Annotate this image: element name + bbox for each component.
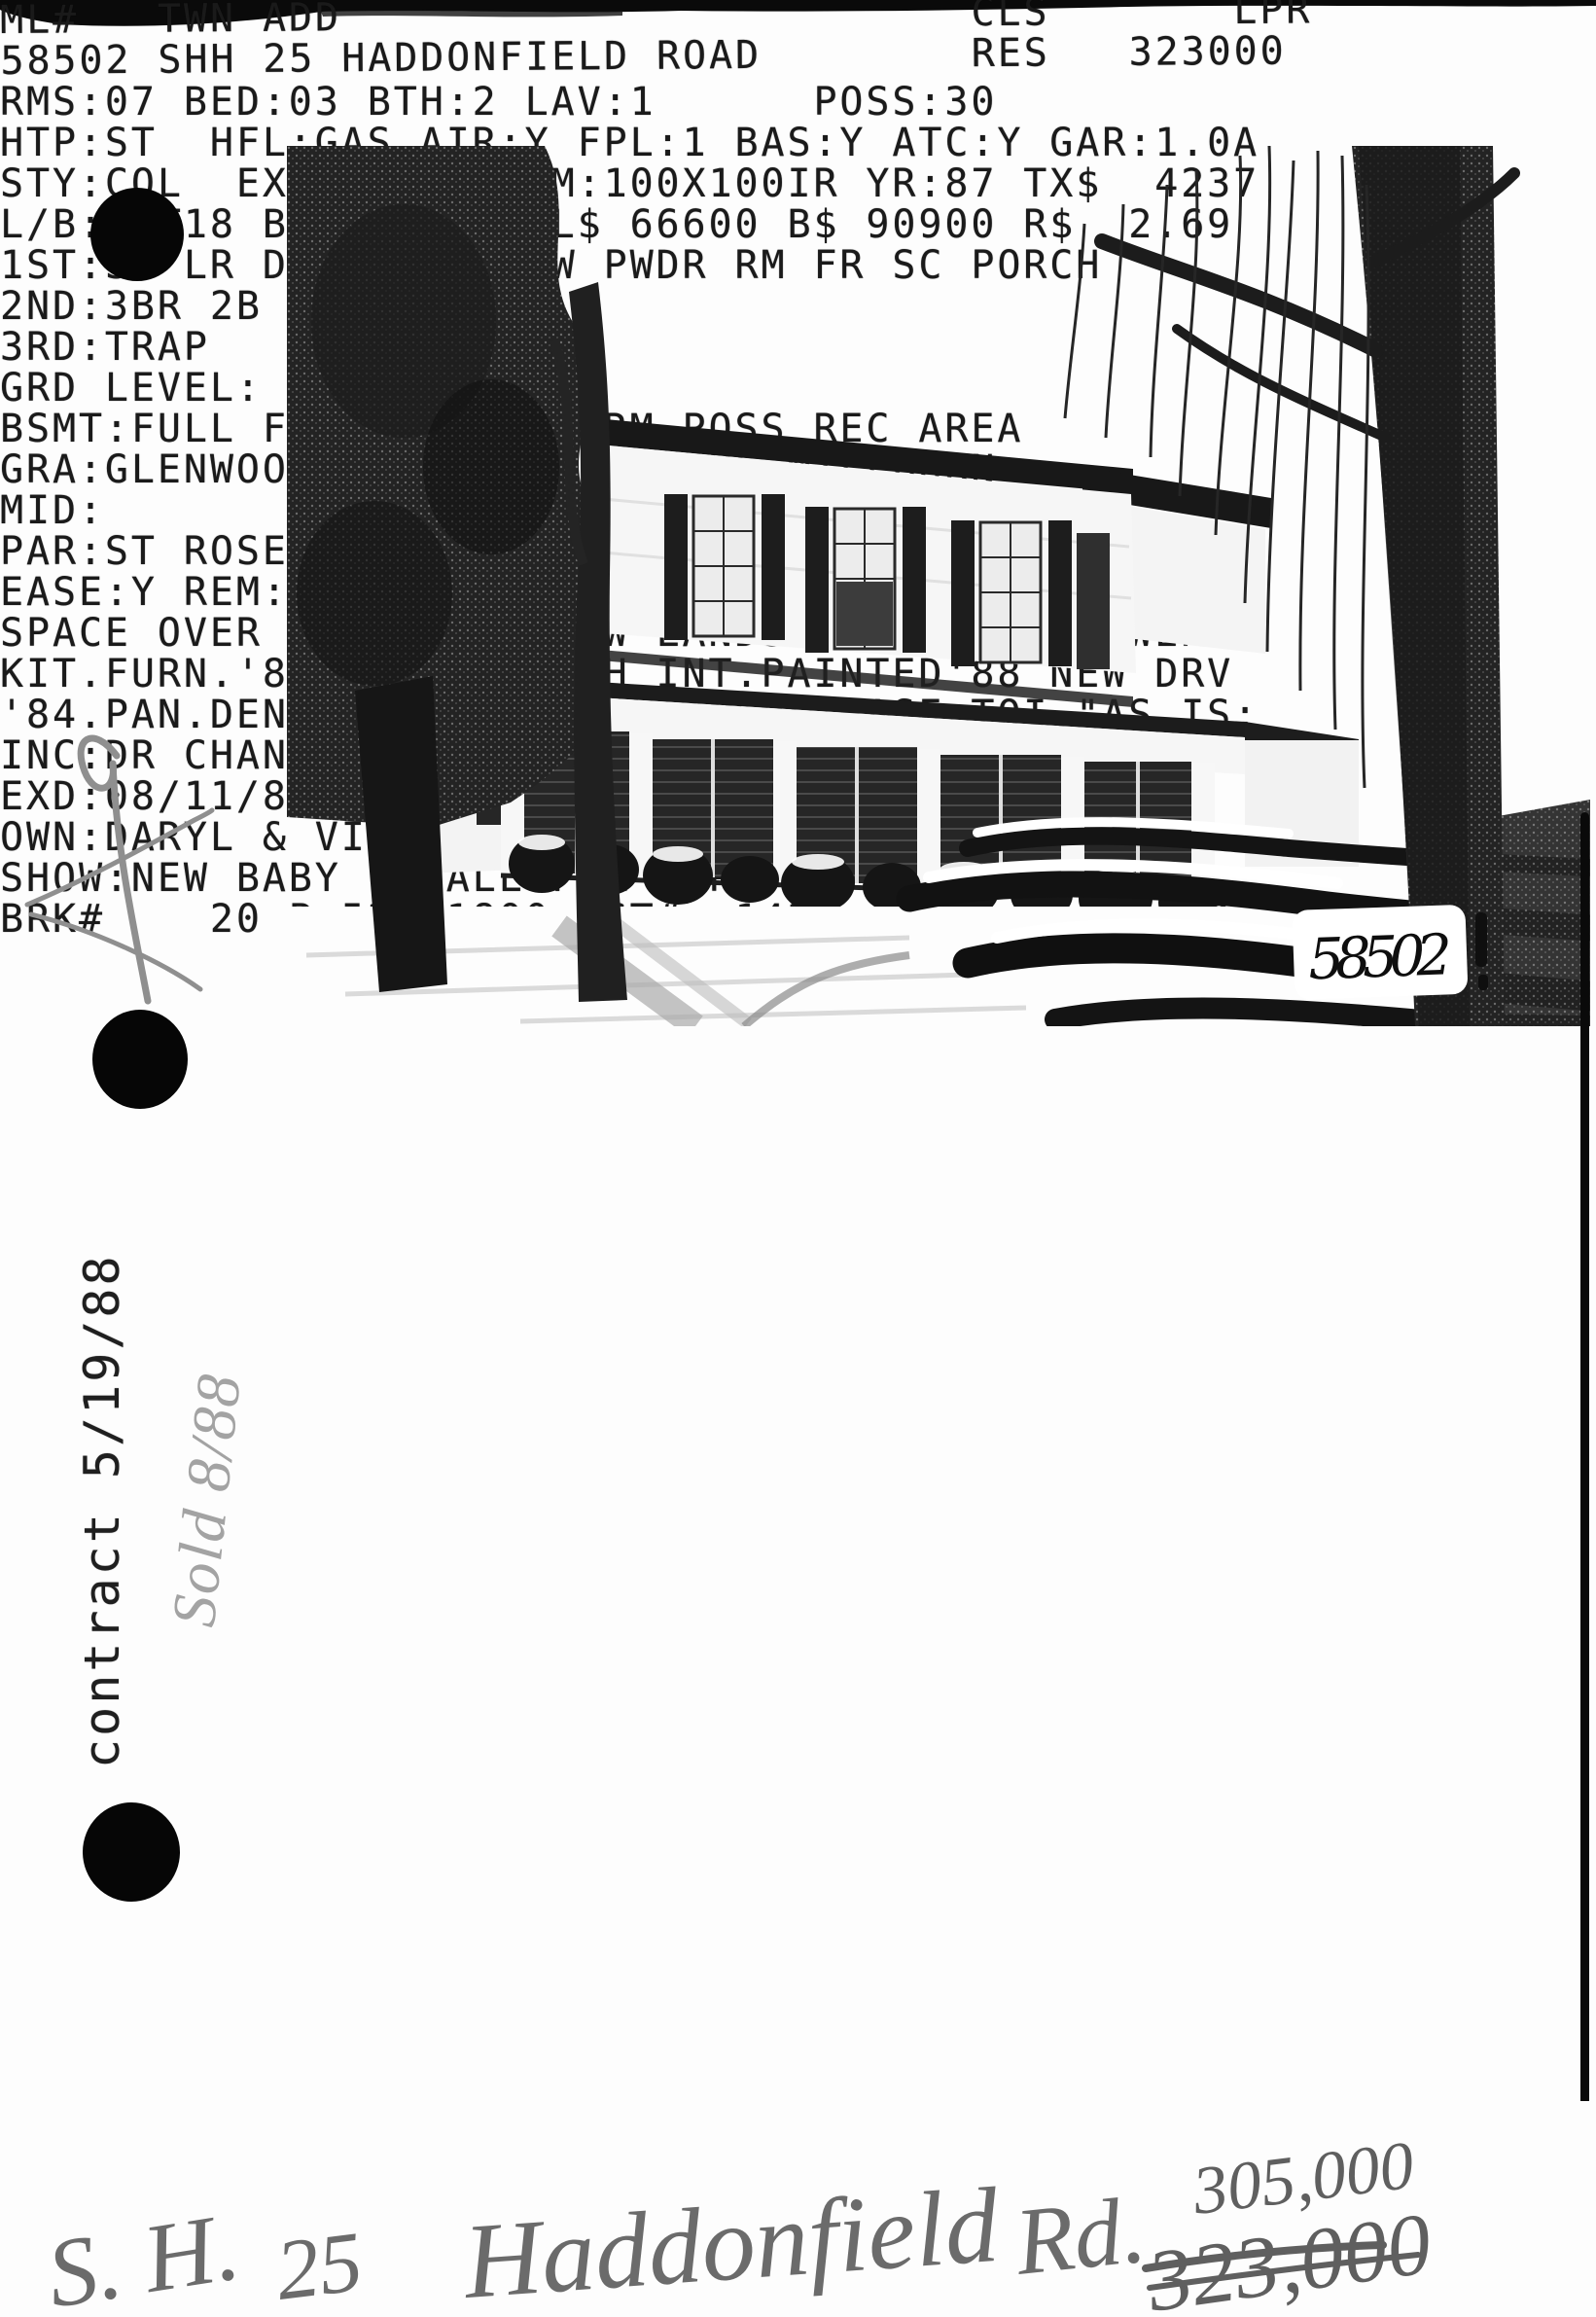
punch-hole-icon bbox=[90, 188, 184, 281]
bottom-handwritten-note: S. H. 25 Haddonfield Rd. 305,000 323,000 bbox=[29, 2111, 1566, 2317]
margin-note-contract: contract 5/19/88 bbox=[74, 1253, 130, 1768]
handwriting-25: 25 bbox=[271, 2215, 368, 2317]
handwriting-rd: Rd. bbox=[1010, 2178, 1151, 2296]
scanned-mls-listing-sheet: ML# TWN ADD CLS LPR 58502 SHH 25 HADDONF… bbox=[0, 0, 1596, 2317]
header: ML# TWN ADD CLS LPR 58502 SHH 25 HADDONF… bbox=[0, 0, 1596, 82]
handwriting-sh: S. H. bbox=[40, 2192, 246, 2317]
photo-label-text: 58502 bbox=[1307, 921, 1455, 992]
marker-dash bbox=[1475, 912, 1487, 967]
header-row-values: 58502 SHH 25 HADDONFIELD ROAD RES 323000 bbox=[0, 28, 1596, 82]
punch-hole-icon bbox=[83, 1802, 180, 1902]
punch-hole-icon bbox=[92, 1010, 188, 1109]
scan-right-edge bbox=[1580, 812, 1589, 2101]
margin-scribble-x bbox=[19, 715, 224, 1016]
house-photo: 58502 bbox=[287, 146, 1590, 1026]
marker-dot bbox=[1478, 975, 1488, 990]
photo-corner-label: 58502 bbox=[1292, 905, 1468, 1000]
handwriting-haddonfield: Haddonfield bbox=[458, 2165, 1003, 2317]
margin-note-sold: Sold 8/88 bbox=[158, 1370, 256, 1630]
listing-line: RMS:07 BED:03 BTH:2 LAV:1 POSS:30 bbox=[0, 82, 1596, 123]
